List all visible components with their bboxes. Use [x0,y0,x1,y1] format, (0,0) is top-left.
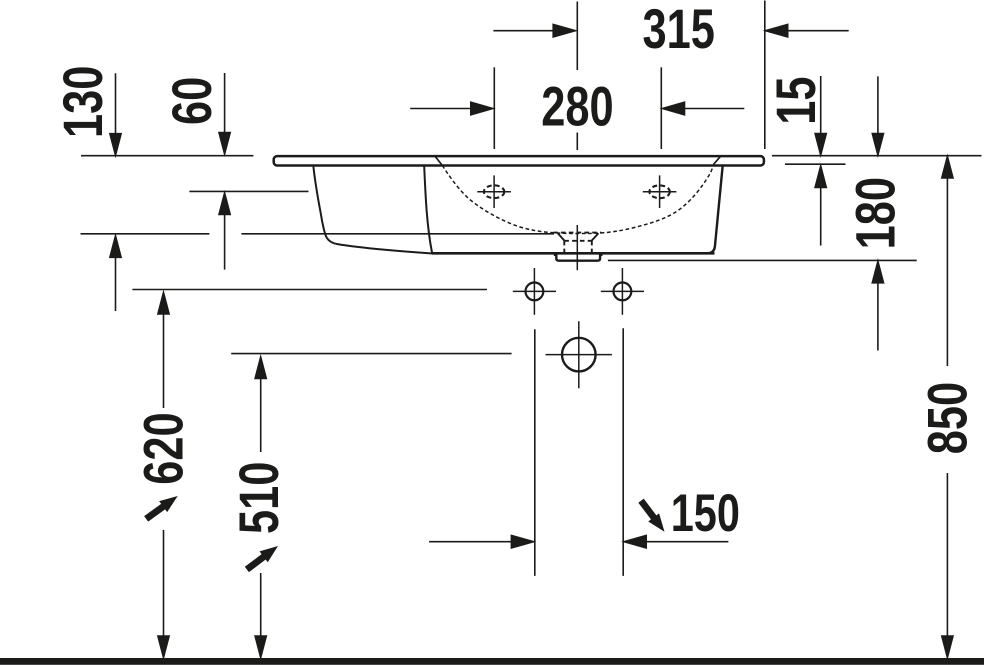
svg-text:315: 315 [643,0,715,60]
svg-text:150: 150 [671,485,740,544]
svg-text:180: 180 [844,177,907,249]
svg-text:60: 60 [161,77,224,125]
svg-text:510: 510 [228,462,291,534]
svg-text:850: 850 [916,382,979,454]
svg-text:280: 280 [541,75,613,138]
svg-text:620: 620 [132,412,195,484]
svg-text:130: 130 [52,66,115,138]
svg-text:15: 15 [765,76,828,124]
